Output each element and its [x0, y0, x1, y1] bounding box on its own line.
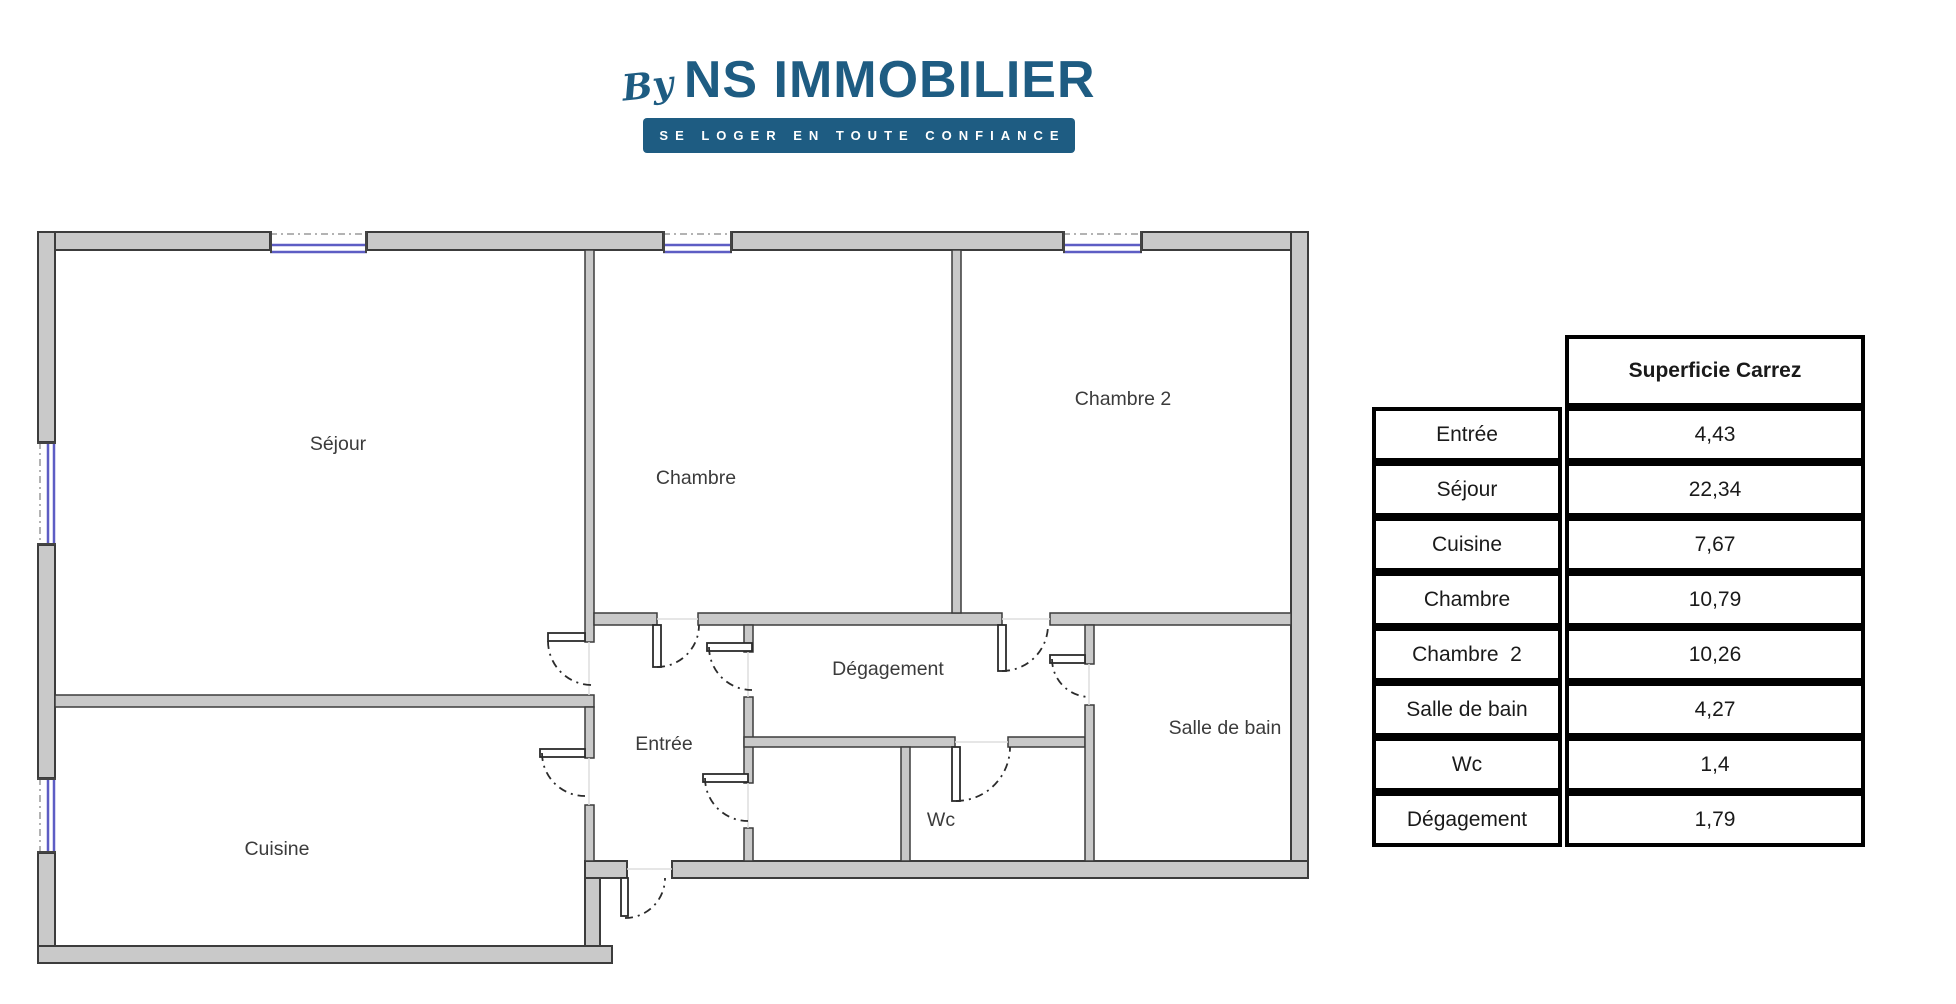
- table-room-degagement: Dégagement: [1372, 792, 1562, 847]
- window-chambre2-top: [1063, 230, 1142, 254]
- door-sejour: [548, 633, 592, 685]
- table-room-sejour: Séjour: [1372, 462, 1562, 517]
- room-label-wc: Wc: [927, 809, 955, 831]
- table-area-degagement: 1,79: [1565, 792, 1865, 847]
- table-corner-empty: [1372, 335, 1562, 407]
- room-label-chambre2: Chambre 2: [1075, 388, 1171, 410]
- room-label-entree: Entrée: [635, 733, 692, 755]
- door-chambre: [653, 625, 699, 667]
- table-room-chambre2: Chambre 2: [1372, 627, 1562, 682]
- room-label-salle-de-bain: Salle de bain: [1169, 717, 1282, 739]
- table-area-salle-de-bain: 4,27: [1565, 682, 1865, 737]
- table-area-entree: 4,43: [1565, 407, 1865, 462]
- door-storage: [703, 774, 748, 821]
- window-sejour-left: [36, 442, 57, 545]
- table-room-chambre: Chambre: [1372, 572, 1562, 627]
- table-room-cuisine: Cuisine: [1372, 517, 1562, 572]
- door-wc: [952, 747, 1010, 801]
- table-area-wc: 1,4: [1565, 737, 1865, 792]
- room-label-degagement: Dégagement: [832, 658, 944, 680]
- table-header-superficie: Superficie Carrez: [1565, 335, 1865, 407]
- superficie-table: Superficie Carrez Entrée 4,43 Séjour 22,…: [1372, 335, 1865, 847]
- door-degagement: [707, 643, 752, 690]
- room-label-sejour: Séjour: [310, 433, 367, 455]
- room-label-cuisine: Cuisine: [244, 838, 309, 860]
- exterior-walls: [38, 232, 1308, 963]
- door-cuisine: [540, 749, 585, 796]
- table-room-entree: Entrée: [1372, 407, 1562, 462]
- room-label-chambre: Chambre: [656, 467, 736, 489]
- table-room-salle-de-bain: Salle de bain: [1372, 682, 1562, 737]
- door-chambre2: [998, 625, 1048, 671]
- door-entrance: [621, 878, 665, 918]
- table-area-sejour: 22,34: [1565, 462, 1865, 517]
- interior-walls: [55, 250, 1291, 861]
- window-chambre-top: [663, 230, 732, 254]
- door-salle-de-bain: [1050, 655, 1090, 697]
- window-cuisine-left: [36, 778, 57, 853]
- table-room-wc: Wc: [1372, 737, 1562, 792]
- table-area-chambre: 10,79: [1565, 572, 1865, 627]
- table-area-chambre2: 10,26: [1565, 627, 1865, 682]
- table-area-cuisine: 7,67: [1565, 517, 1865, 572]
- window-sejour-top: [270, 230, 367, 254]
